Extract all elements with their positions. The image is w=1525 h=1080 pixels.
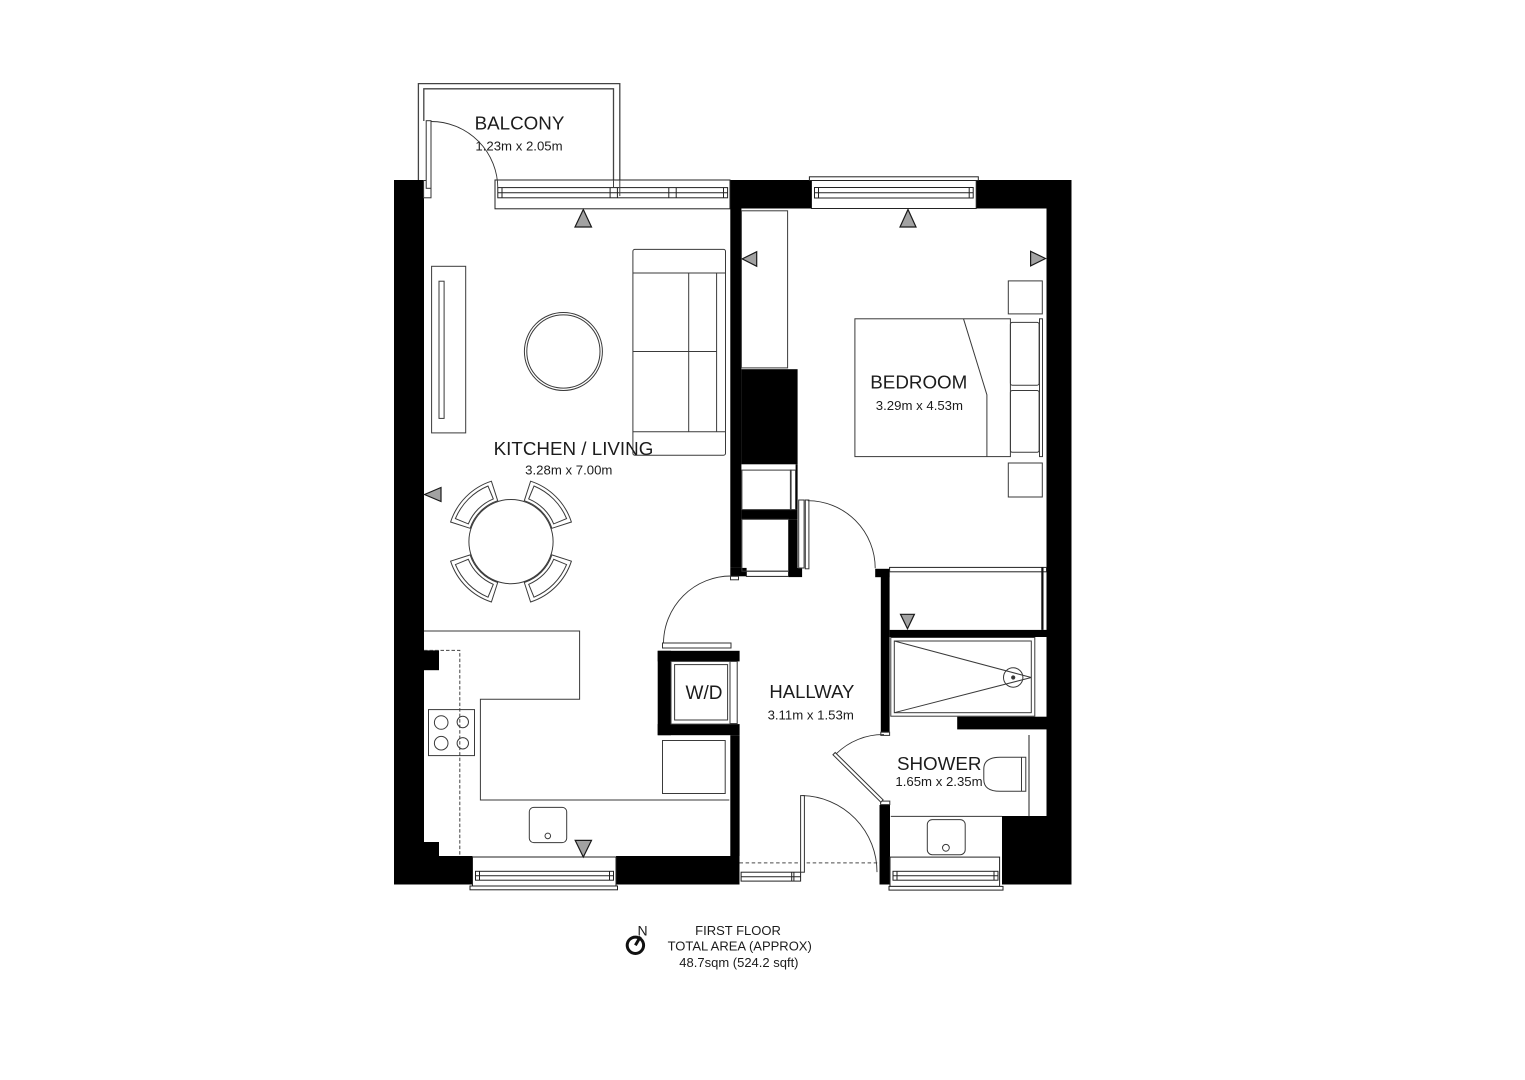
svg-text:BALCONY: BALCONY (475, 113, 565, 134)
svg-text:SHOWER: SHOWER (897, 753, 982, 774)
svg-text:3.28m x 7.00m: 3.28m x 7.00m (525, 463, 612, 478)
svg-text:1.23m x 2.05m: 1.23m x 2.05m (475, 139, 562, 154)
svg-text:W/D: W/D (686, 683, 723, 704)
svg-text:KITCHEN / LIVING: KITCHEN / LIVING (494, 438, 654, 459)
svg-text:1.65m x 2.35m: 1.65m x 2.35m (895, 774, 982, 789)
svg-text:FIRST FLOOR: FIRST FLOOR (695, 923, 781, 938)
svg-text:3.29m x 4.53m: 3.29m x 4.53m (876, 398, 963, 413)
svg-text:48.7sqm (524.2 sqft): 48.7sqm (524.2 sqft) (679, 955, 798, 970)
svg-text:3.11m x 1.53m: 3.11m x 1.53m (768, 708, 854, 723)
svg-text:HALLWAY: HALLWAY (769, 681, 854, 702)
svg-text:TOTAL AREA (APPROX): TOTAL AREA (APPROX) (668, 938, 812, 953)
svg-text:BEDROOM: BEDROOM (870, 372, 967, 393)
